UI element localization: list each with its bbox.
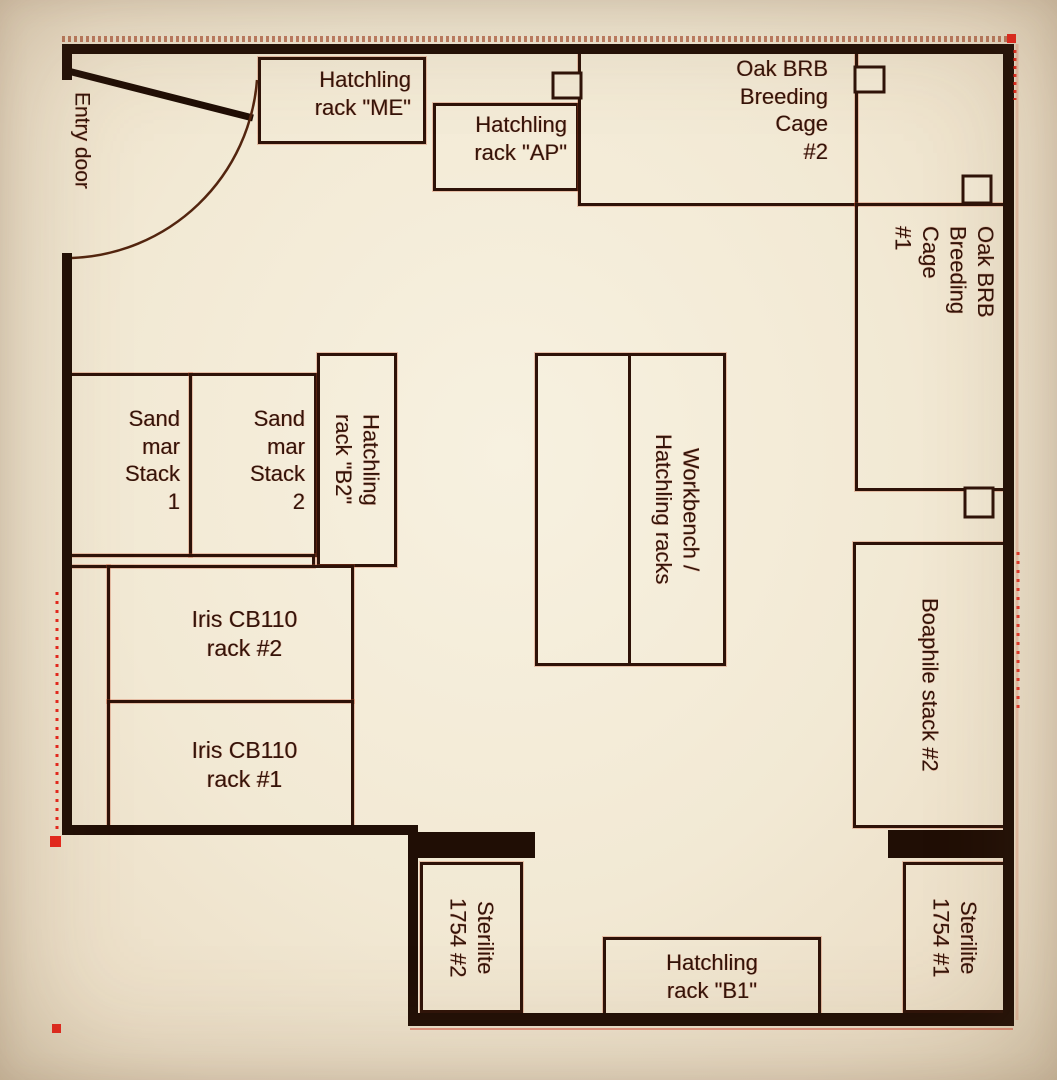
unlabeled-corner-region — [855, 46, 1008, 206]
iris-cb110-rack-2-label: Iris CB110 rack #2 — [164, 605, 298, 663]
boaphile-stack-2-label: Boaphile stack #2 — [916, 598, 944, 772]
registration-mark — [52, 1024, 61, 1033]
sterilite-1754-1-label: Sterilite 1754 #1 — [927, 898, 982, 978]
hatchling-rack-ap-label: Hatchling rack "AP" — [474, 111, 567, 166]
room-hatchling-rack-me: Hatchling rack "ME" — [258, 57, 426, 144]
room-oak-brb-breeding-cage-1: Oak BRB Breeding Cage #1 — [855, 203, 1008, 491]
entry-door-swing-arc — [72, 80, 257, 258]
hatchling-rack-me-label: Hatchling rack "ME" — [315, 66, 411, 121]
floor-plan: Entry door Hatchling rack "ME" Hatchling… — [0, 0, 1057, 1080]
workbench-label: Workbench / Hatchling racks — [650, 434, 705, 584]
iris-cb110-rack-1-label: Iris CB110 rack #1 — [164, 736, 298, 794]
registration-mark — [1007, 34, 1016, 43]
sand-mar-stack-1-label: Sand mar Stack 1 — [125, 405, 180, 515]
room-hatchling-rack-b1: Hatchling rack "B1" — [603, 937, 821, 1016]
hatchling-rack-b1-label: Hatchling rack "B1" — [666, 949, 758, 1004]
sand-mar-stack-2-label: Sand mar Stack 2 — [250, 405, 305, 515]
cage-notch-1 — [553, 73, 581, 98]
wall-block-right — [888, 830, 1013, 858]
cage-notch-4 — [965, 488, 993, 517]
room-iris-cb110-rack-2: Iris CB110 rack #2 — [107, 565, 354, 703]
oak-brb-cage-2-label: Oak BRB Breeding Cage #2 — [736, 55, 828, 165]
hatchling-rack-b2-label: Hatchling rack "B2" — [330, 414, 385, 506]
room-oak-brb-breeding-cage-2: Oak BRB Breeding Cage #2 — [578, 46, 858, 206]
sterilite-1754-2-label: Sterilite 1754 #2 — [444, 898, 499, 978]
entry-door-label: Entry door — [68, 92, 94, 189]
room-sterilite-1754-2: Sterilite 1754 #2 — [420, 862, 523, 1013]
room-boaphile-stack-2: Boaphile stack #2 — [853, 542, 1006, 828]
room-sterilite-1754-1: Sterilite 1754 #1 — [903, 862, 1006, 1013]
room-sand-mar-stack-1: Sand mar Stack 1 — [63, 373, 192, 557]
room-iris-cb110-rack-1: Iris CB110 rack #1 — [107, 700, 354, 829]
room-hatchling-rack-b2: Hatchling rack "B2" — [317, 353, 397, 567]
floor-strip — [63, 565, 110, 829]
registration-mark — [50, 836, 61, 847]
room-hatchling-rack-ap: Hatchling rack "AP" — [433, 103, 579, 191]
room-workbench: Workbench / Hatchling racks — [535, 353, 726, 666]
wall-block-left — [412, 832, 535, 858]
room-sand-mar-stack-2: Sand mar Stack 2 — [189, 373, 317, 557]
wall-left-stub — [62, 44, 72, 80]
wall-lower-left — [408, 825, 418, 1020]
oak-brb-cage-1-label: Oak BRB Breeding Cage #1 — [889, 226, 999, 318]
